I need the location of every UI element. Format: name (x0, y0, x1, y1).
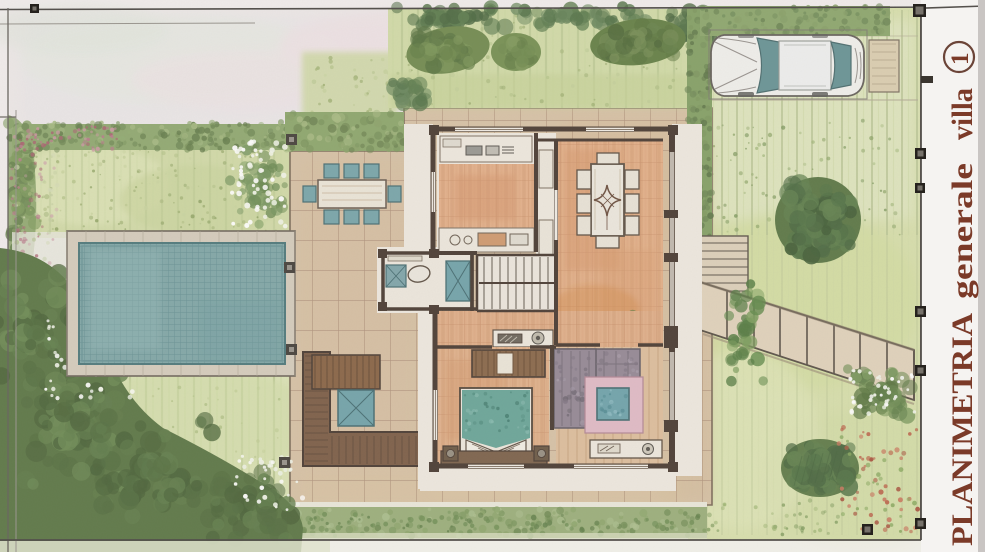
svg-text:1: 1 (947, 53, 974, 66)
svg-text:generale: generale (946, 163, 979, 299)
svg-text:PLANIMETRIA: PLANIMETRIA (946, 313, 979, 546)
svg-text:villa: villa (946, 88, 979, 140)
